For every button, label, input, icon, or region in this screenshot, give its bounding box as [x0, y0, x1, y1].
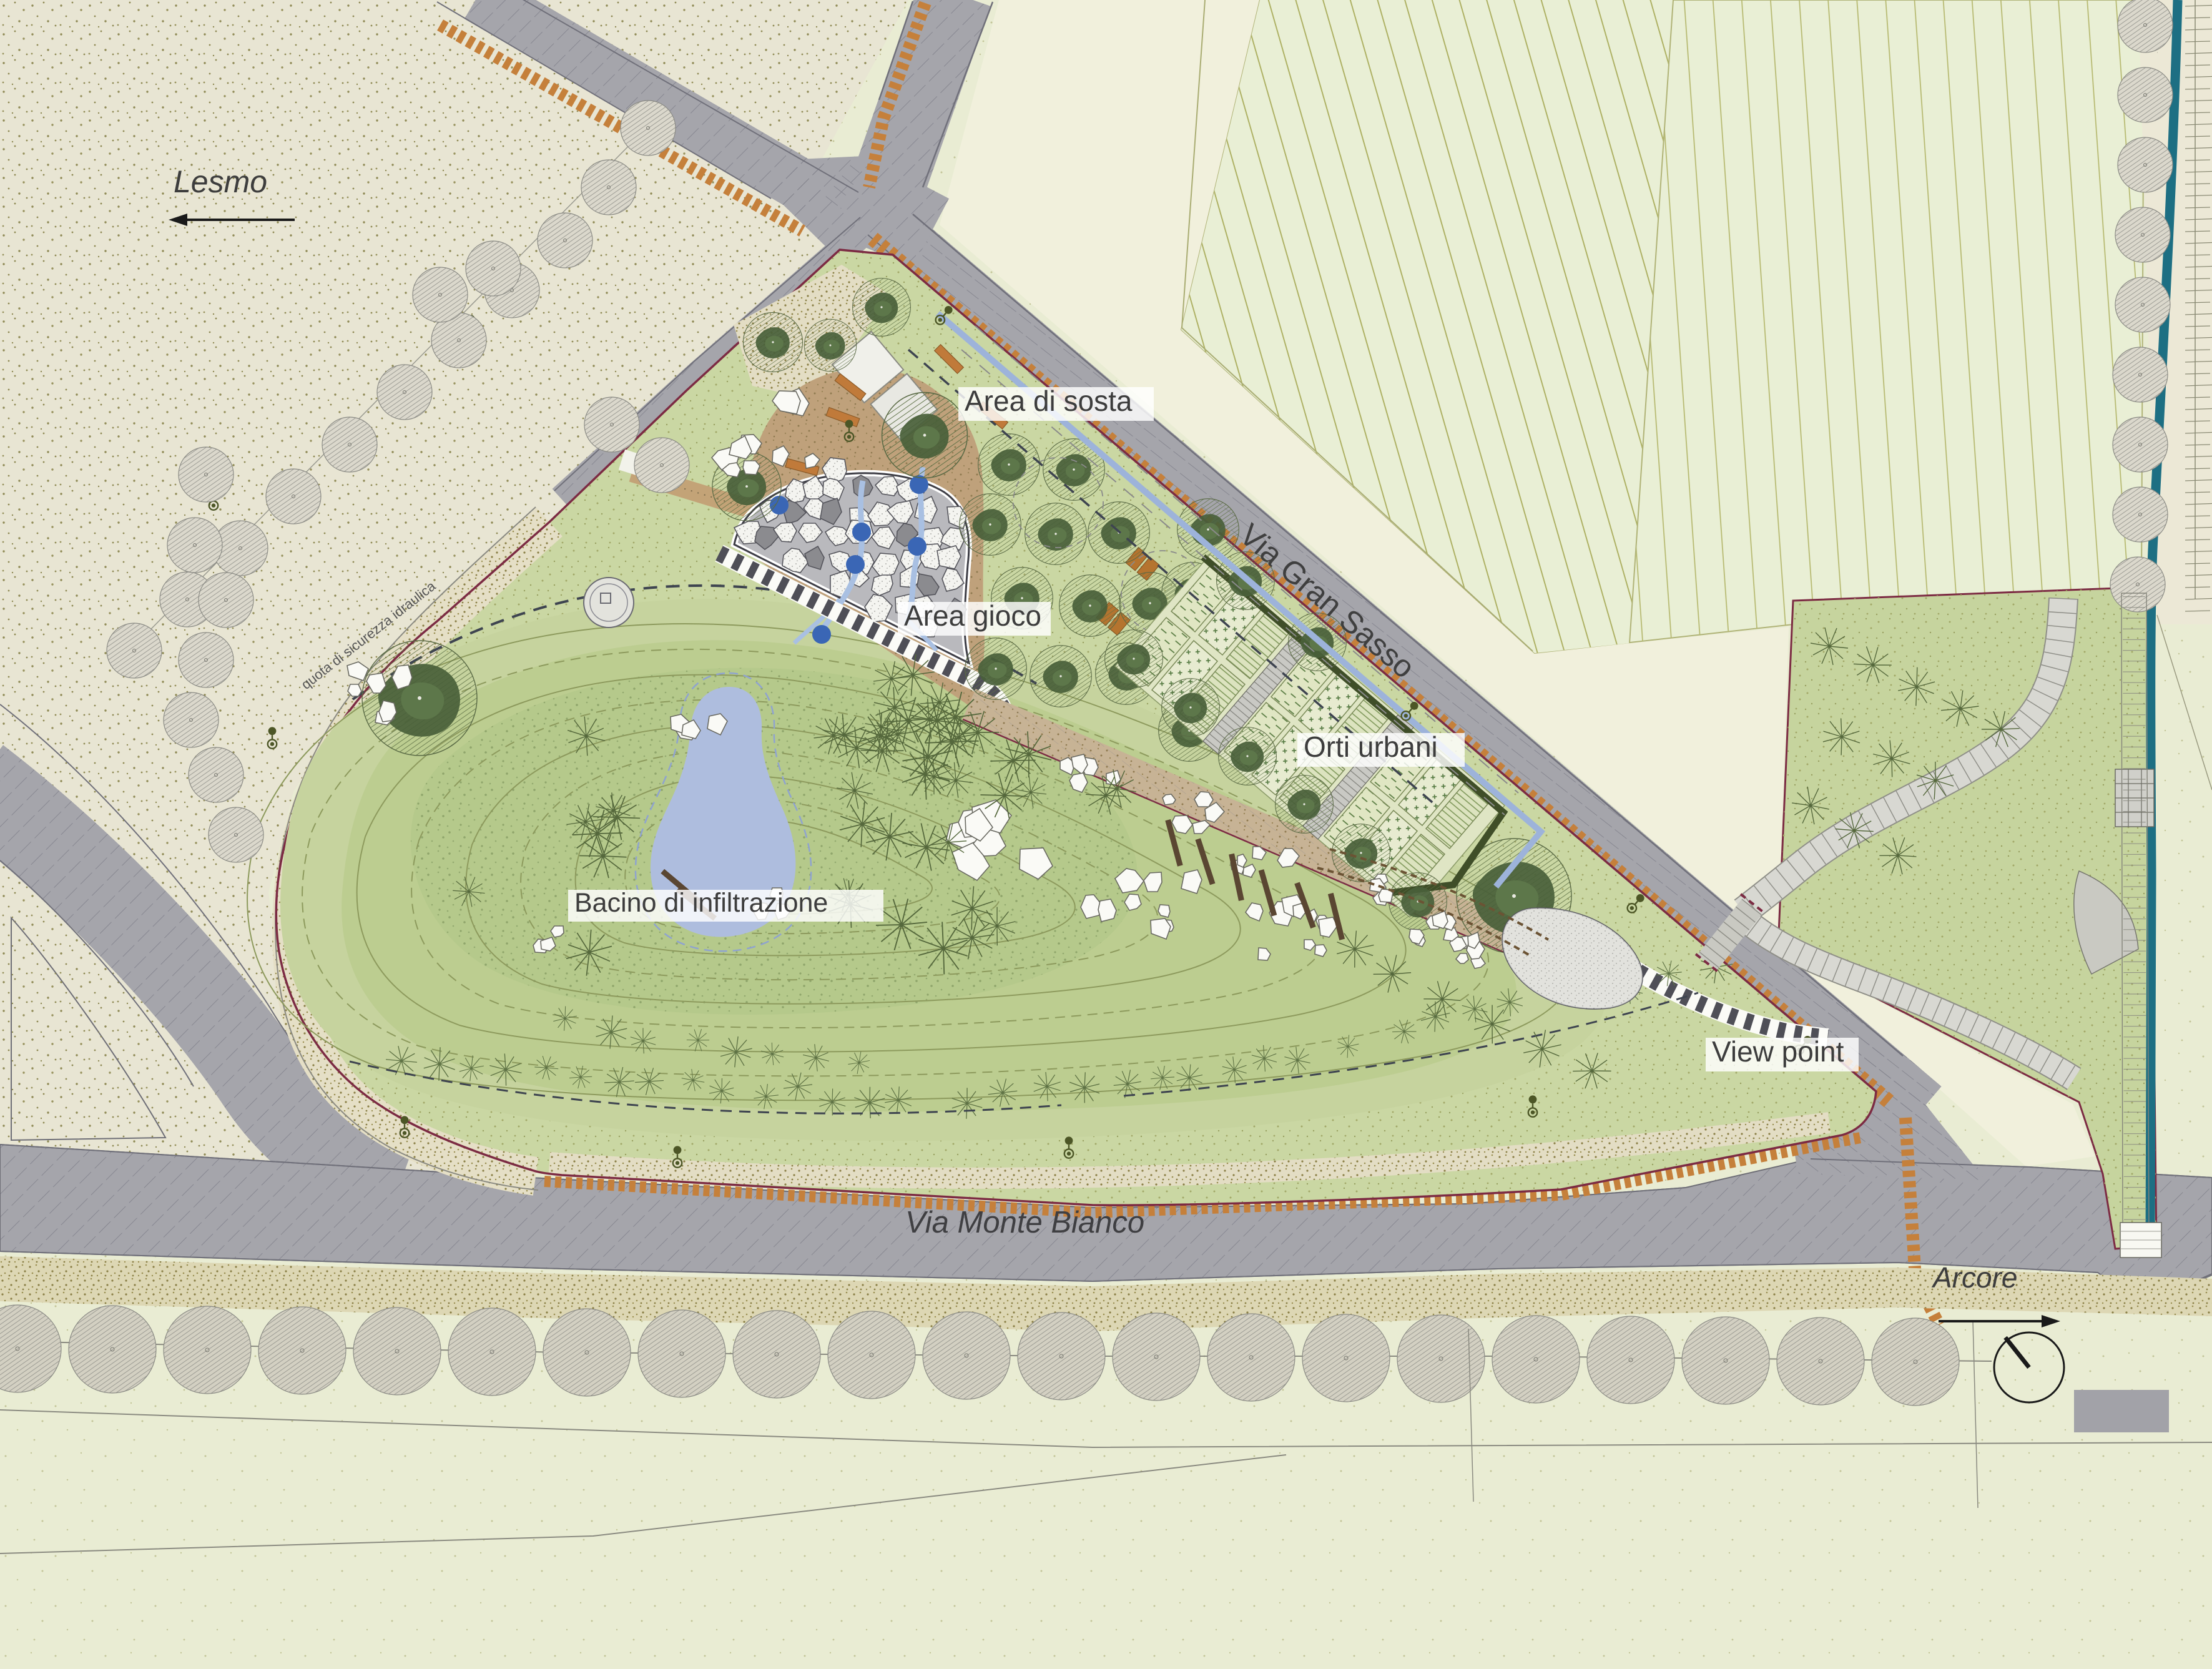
svg-text:Area gioco: Area gioco: [904, 599, 1041, 632]
svg-text:Bacino di infiltrazione: Bacino di infiltrazione: [574, 888, 828, 918]
svg-text:Via Monte Bianco: Via Monte Bianco: [905, 1206, 1144, 1239]
svg-text:Arcore: Arcore: [1931, 1261, 2017, 1294]
svg-text:Lesmo: Lesmo: [174, 164, 267, 199]
svg-text:Orti urbani: Orti urbani: [1304, 731, 1438, 763]
svg-text:Area di sosta: Area di sosta: [965, 385, 1133, 417]
svg-text:View point: View point: [1712, 1035, 1844, 1068]
